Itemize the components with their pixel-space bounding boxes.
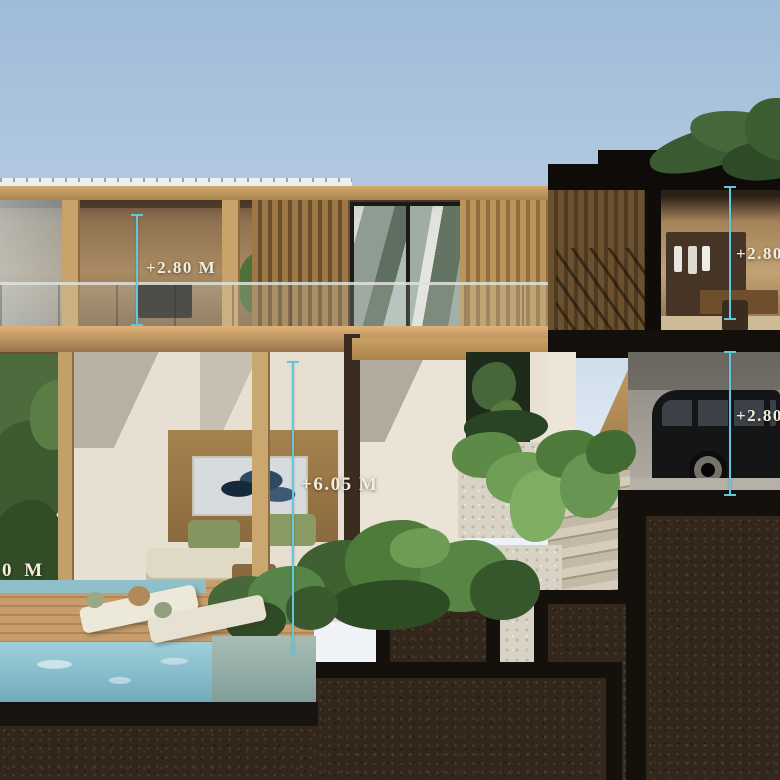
railing-top-rail [0, 282, 548, 285]
dimension-line-upper-right [729, 186, 731, 320]
stair-railing [556, 248, 650, 332]
dimension-label-garage: +2.80 [736, 406, 780, 426]
soil-left [0, 726, 318, 780]
hanging-clothes [674, 246, 682, 272]
wall-shadow [200, 352, 362, 432]
dimension-line-upper-left [136, 214, 138, 326]
hanging-clothes [688, 246, 697, 274]
soil-center [316, 678, 606, 780]
roof-fascia [0, 186, 548, 200]
roof-railing-clamps [0, 178, 352, 182]
soil-right [646, 516, 780, 780]
garage-ceiling-shadow [628, 352, 780, 390]
dimension-line-overall [292, 361, 294, 653]
abstract-artwork [192, 456, 308, 516]
wall-shadow [360, 352, 466, 442]
villa-section-render: +2.80 M +2.80 +6.05 M +2.80 0 M [0, 0, 780, 780]
dimension-label-upper-right: +2.80 [736, 244, 780, 264]
hanging-clothes [702, 246, 710, 271]
desk-chair [722, 300, 748, 332]
planter-wall [212, 636, 316, 706]
green-armchair [262, 514, 316, 546]
dimension-line-garage [729, 351, 731, 496]
green-armchair [188, 520, 240, 550]
side-table [128, 586, 150, 606]
dimension-label-overall: +6.05 M [301, 474, 378, 496]
swimming-pool [0, 642, 218, 706]
dimension-label-ground: 0 M [2, 560, 46, 582]
dimension-label-upper-left: +2.80 M [146, 258, 216, 278]
